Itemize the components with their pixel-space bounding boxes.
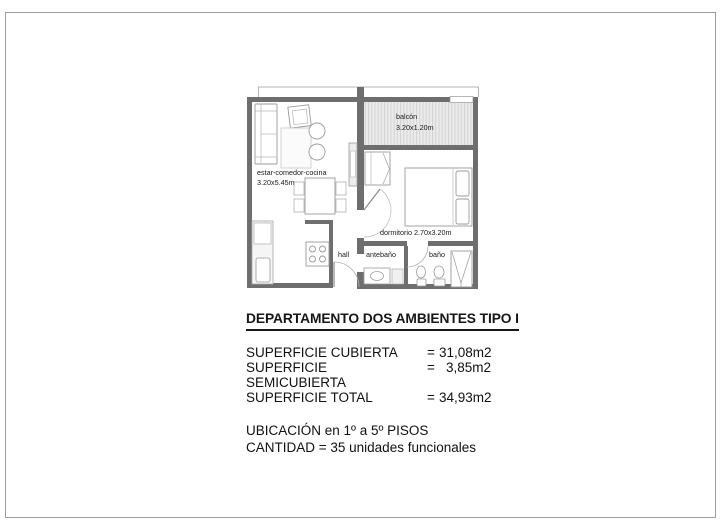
sofa (255, 104, 277, 164)
bathroom-door (407, 246, 428, 267)
surface-label: SUPERFICIE TOTAL (246, 390, 427, 405)
location-line: UBICACIÓN en 1º a 5º PISOS (246, 422, 519, 439)
equals-sign: = (427, 345, 439, 360)
apartment-title: DEPARTAMENTO DOS AMBIENTES TIPO I (246, 312, 519, 331)
surface-value: 3,85m2 (439, 360, 491, 390)
balcony-size: 3.20x1.20m (396, 123, 434, 132)
projection-line (258, 87, 479, 97)
entrance-door (334, 262, 359, 287)
equals-sign: = (427, 360, 439, 390)
page: { "sheet": { "background": "#ffffff", "b… (0, 0, 720, 532)
living-size: 3.20x5.45m (257, 178, 295, 187)
toilet (434, 266, 445, 286)
bed (405, 168, 472, 226)
surface-value: 34,93m2 (439, 390, 491, 405)
equals-sign: = (427, 390, 439, 405)
surface-label: SUPERFICIE SEMICUBIERTA (246, 360, 427, 390)
balcony-lintel (450, 97, 473, 103)
surface-value: 31,08m2 (439, 345, 491, 360)
tv-unit (349, 143, 357, 186)
vanity-sink (364, 268, 403, 284)
apartment-info: DEPARTAMENTO DOS AMBIENTES TIPO I SUPERF… (246, 311, 519, 456)
surface-row: SUPERFICIE TOTAL = 34,93m2 (246, 390, 519, 405)
dining-table (294, 178, 346, 214)
bathroom-label: baño (429, 250, 445, 259)
bedroom-label: dormitorio 2.70x3.20m (380, 228, 452, 237)
bidet (417, 266, 427, 286)
quantity-line: CANTIDAD = 35 unidades funcionales (246, 439, 519, 456)
kitchen-counter (252, 221, 273, 284)
surface-row: SUPERFICIE CUBIERTA = 31,08m2 (246, 345, 519, 360)
balcony-label: balcón (396, 112, 417, 121)
surface-list: SUPERFICIE CUBIERTA = 31,08m2 SUPERFICIE… (246, 345, 519, 405)
surface-row: SUPERFICIE SEMICUBIERTA = 3,85m2 (246, 360, 519, 390)
stove (306, 242, 329, 266)
living-label: estar-comedor-cocina (257, 168, 327, 177)
hall-label: hall (338, 250, 350, 259)
rug (281, 128, 311, 168)
surface-label: SUPERFICIE CUBIERTA (246, 345, 427, 360)
shower (451, 251, 472, 287)
wardrobe (365, 152, 390, 185)
antebath-label: antebaño (366, 250, 396, 259)
armchair (288, 105, 311, 128)
